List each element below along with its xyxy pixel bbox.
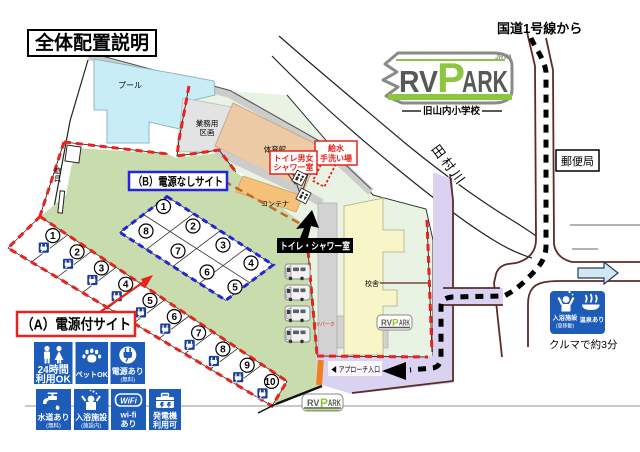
svg-text:（B）電源なしサイト: （B）電源なしサイト [133,175,223,189]
svg-text:JRVA: JRVA [495,54,512,61]
svg-text:6: 6 [172,312,178,323]
svg-text:校舎: 校舎 [365,279,379,288]
svg-text:4: 4 [123,280,129,291]
svg-text:利用OK: 利用OK [36,373,72,386]
svg-text:(無料): (無料) [120,376,135,384]
svg-text:国道1号線から: 国道1号線から [497,21,582,36]
svg-text:RV: RV [381,319,393,328]
svg-text:WiFi: WiFi [120,397,138,406]
svg-text:ARK: ARK [399,319,410,328]
svg-text:3: 3 [220,241,226,252]
svg-text:全体配置説明: 全体配置説明 [34,31,149,54]
svg-text:1: 1 [161,202,167,213]
svg-text:プール: プール [118,81,142,90]
svg-text:コンテナ: コンテナ [261,200,289,208]
svg-text:3: 3 [99,264,105,275]
svg-text:入浴施設: 入浴施設 [74,412,108,422]
svg-text:10: 10 [264,377,276,388]
svg-text:8: 8 [143,227,149,238]
svg-text:1: 1 [50,231,56,242]
svg-text:水道あり: 水道あり [37,412,70,422]
svg-text:RV: RV [307,398,319,408]
svg-text:旧山内小学校: 旧山内小学校 [423,105,481,117]
svg-text:電源あり: 電源あり [112,366,144,376]
svg-text:温泉あり: 温泉あり [580,316,605,324]
svg-text:4: 4 [248,259,254,270]
svg-text:P: P [437,54,465,101]
svg-text:(無料): (無料) [46,422,61,430]
svg-text:wi-fi: wi-fi [120,411,137,420]
svg-text:あり: あり [121,420,137,429]
svg-text:9: 9 [244,361,250,372]
svg-text:手洗い場: 手洗い場 [320,153,352,163]
svg-text:入浴施設: 入浴施設 [552,314,579,322]
svg-text:クルマで約3分: クルマで約3分 [549,338,618,351]
svg-text:6: 6 [204,268,210,279]
svg-text:7: 7 [196,328,202,339]
svg-text:ARK: ARK [462,64,508,99]
svg-text:7: 7 [175,247,181,258]
svg-text:ペットOK: ペットOK [76,370,109,379]
svg-text:5: 5 [147,296,153,307]
svg-text:2: 2 [190,222,196,233]
svg-text:シャワー室: シャワー室 [274,162,314,172]
svg-text:（A）電源付サイト: （A）電源付サイト [21,316,131,334]
svg-text:郵便局: 郵便局 [561,155,594,168]
svg-text:発電機: 発電機 [152,411,177,421]
svg-text:8: 8 [220,345,226,356]
svg-text:区画: 区画 [200,128,215,137]
svg-text:トイレ・シャワー室: トイレ・シャワー室 [280,241,350,253]
svg-text:トイレ男女: トイレ男女 [274,153,314,163]
svg-text:RVパーク: RVパーク [313,322,335,328]
svg-text:5: 5 [232,283,238,294]
svg-text:業務用: 業務用 [196,118,219,128]
svg-text:(車移動): (車移動) [556,323,575,330]
svg-text:ARK: ARK [328,398,341,408]
svg-text:◀ アプローチ入口: ◀ アプローチ入口 [331,365,380,374]
svg-text:利用可: 利用可 [152,420,177,430]
svg-text:(施設内): (施設内) [81,422,101,430]
svg-text:具: 具 [54,175,61,183]
svg-text:遊: 遊 [54,166,61,175]
svg-text:給水: 給水 [328,143,345,153]
svg-text:RV: RV [399,64,438,99]
svg-text:2: 2 [74,247,80,258]
